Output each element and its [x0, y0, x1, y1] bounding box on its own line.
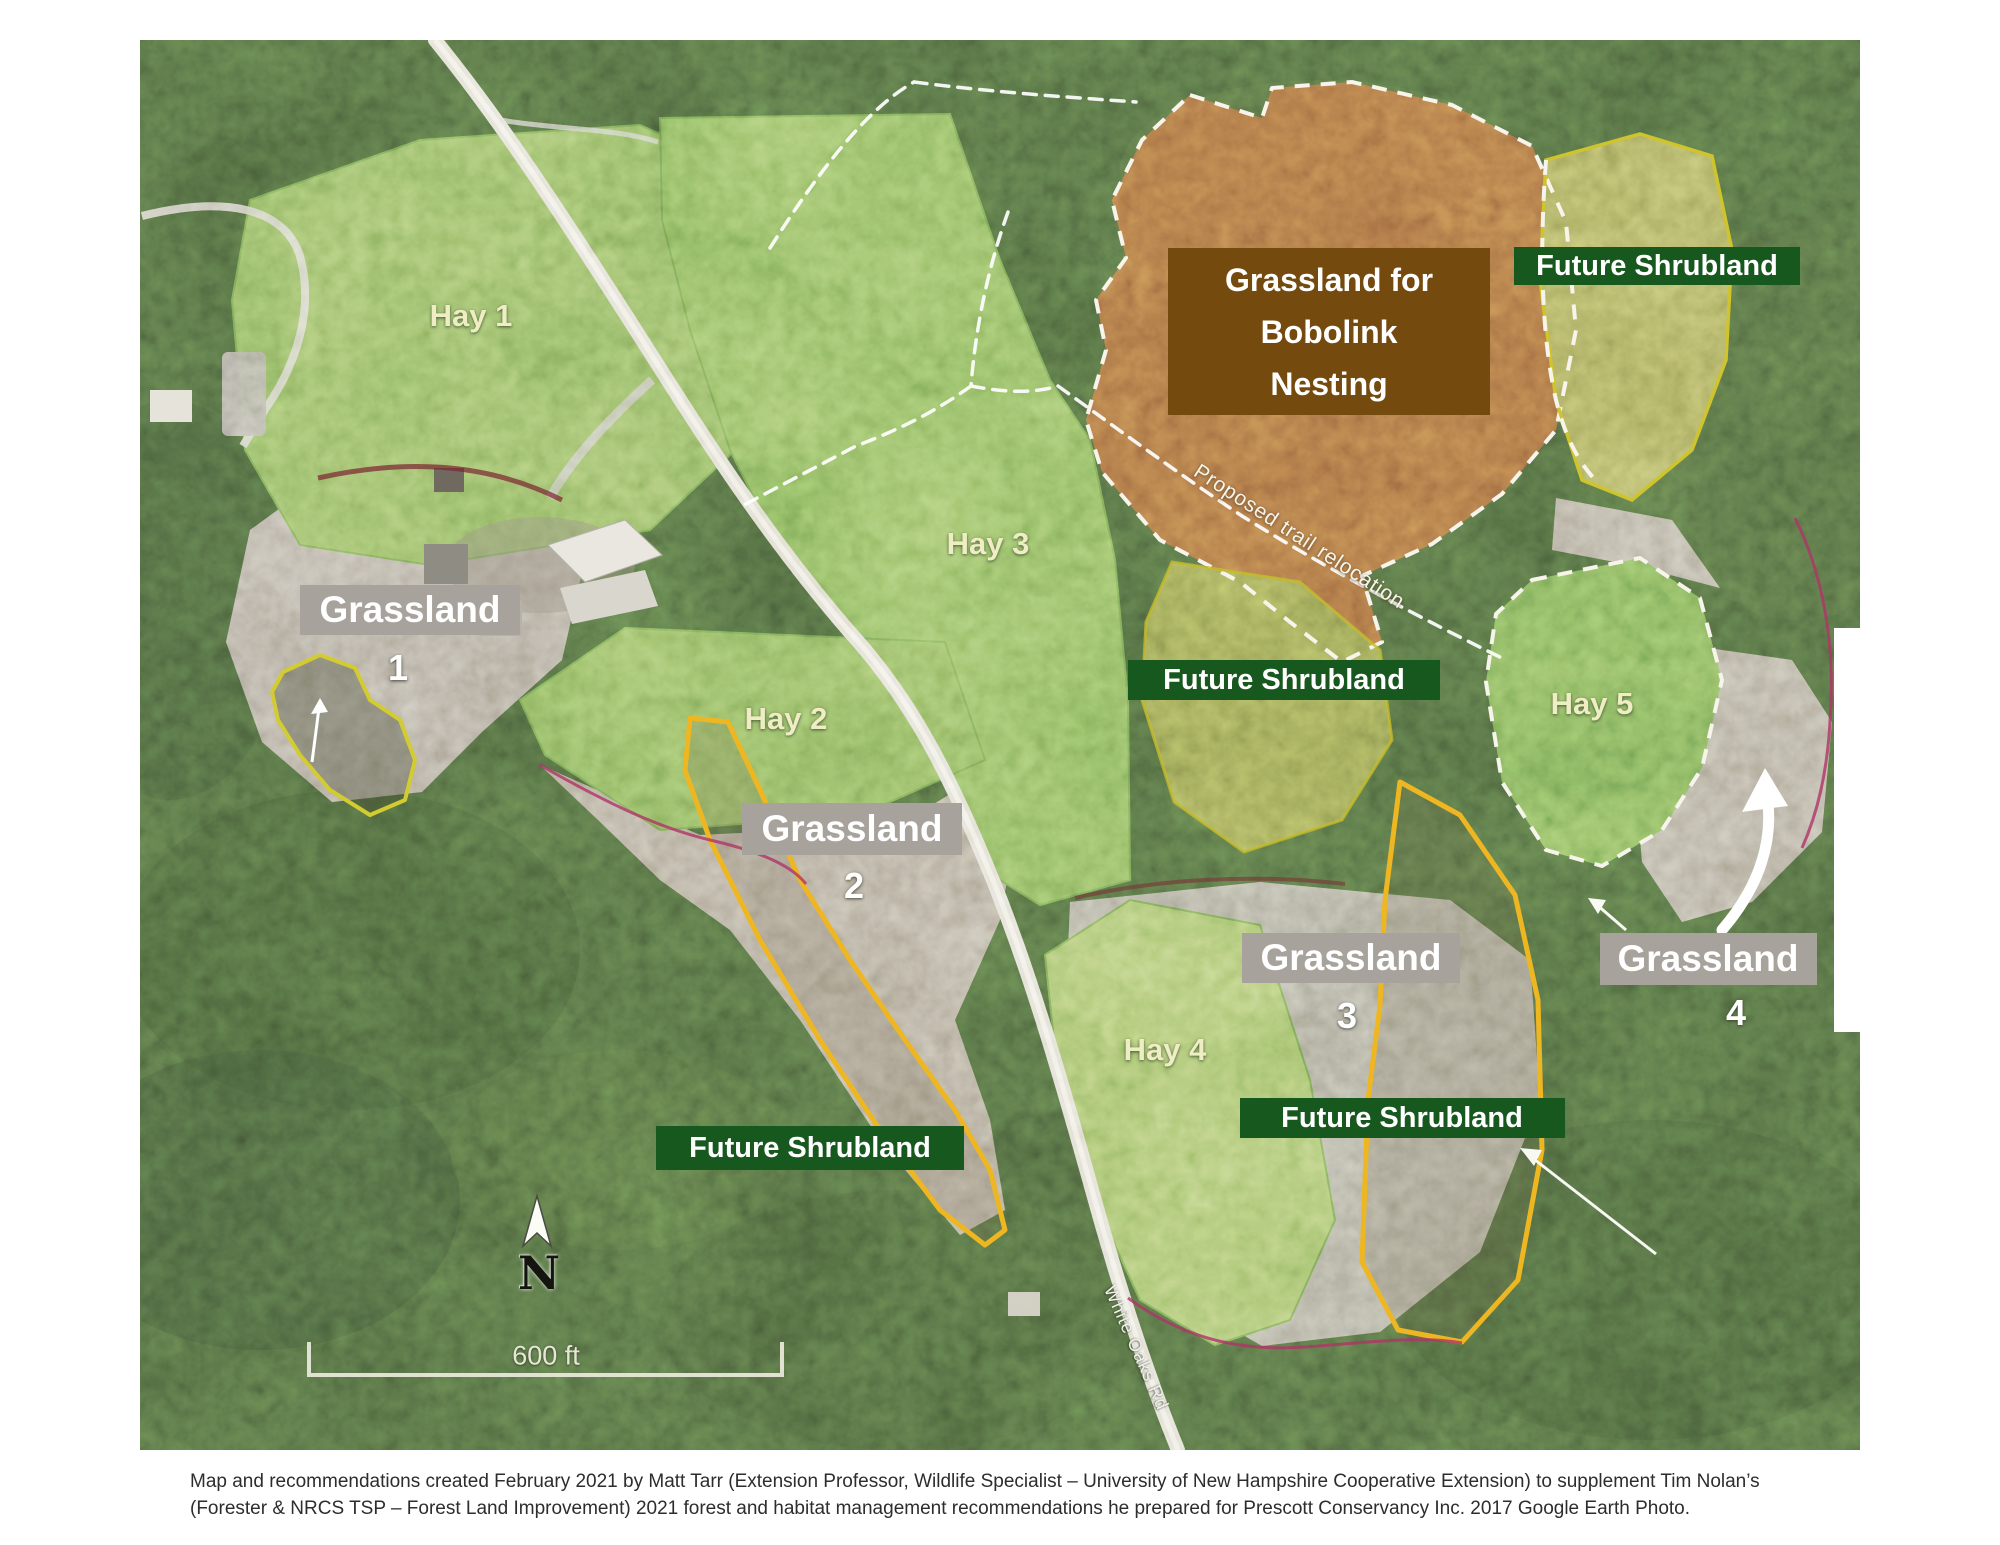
- caption-line-1: Map and recommendations created February…: [190, 1468, 1830, 1495]
- bobolink-grassland-label: Grassland for Bobolink Nesting: [1168, 248, 1490, 415]
- grassland-number-2: 2: [844, 865, 864, 907]
- hay-field-label-5: Hay 5: [1551, 686, 1634, 722]
- hay-field-label-3: Hay 3: [947, 526, 1030, 562]
- bobolink-label-line3: Nesting: [1270, 358, 1387, 410]
- grassland-label-4: Grassland: [1600, 933, 1817, 985]
- map-page: Grassland for Bobolink Nesting Proposed …: [0, 0, 2000, 1545]
- caption-line-2: (Forester & NRCS TSP – Forest Land Impro…: [190, 1495, 1830, 1522]
- house-west: [150, 390, 192, 422]
- grassland-number-4: 4: [1726, 992, 1746, 1034]
- map-caption: Map and recommendations created February…: [190, 1468, 1830, 1522]
- grassland-label-2: Grassland: [742, 803, 962, 855]
- bobolink-label-line1: Grassland for: [1225, 254, 1433, 306]
- grassland-number-3: 3: [1337, 995, 1357, 1037]
- scale-bar-label: 600 ft: [512, 1341, 580, 1372]
- bobolink-label-line2: Bobolink: [1261, 306, 1398, 358]
- future-shrubland-label-2: Future Shrubland: [1128, 660, 1440, 700]
- future-shrubland-label-4: Future Shrubland: [656, 1126, 964, 1170]
- outbuilding: [424, 544, 468, 584]
- hay-field-label-4: Hay 4: [1124, 1032, 1207, 1068]
- hay-field-label-1: Hay 1: [430, 298, 513, 334]
- grassland-number-1: 1: [388, 647, 408, 689]
- grassland-label-3: Grassland: [1242, 933, 1460, 983]
- future-shrubland-label-1: Future Shrubland: [1514, 247, 1800, 285]
- grassland-label-1: Grassland: [300, 585, 520, 635]
- future-shrubland-label-3: Future Shrubland: [1240, 1098, 1565, 1138]
- north-letter: N: [518, 1246, 560, 1300]
- hay-field-label-2: Hay 2: [745, 701, 828, 737]
